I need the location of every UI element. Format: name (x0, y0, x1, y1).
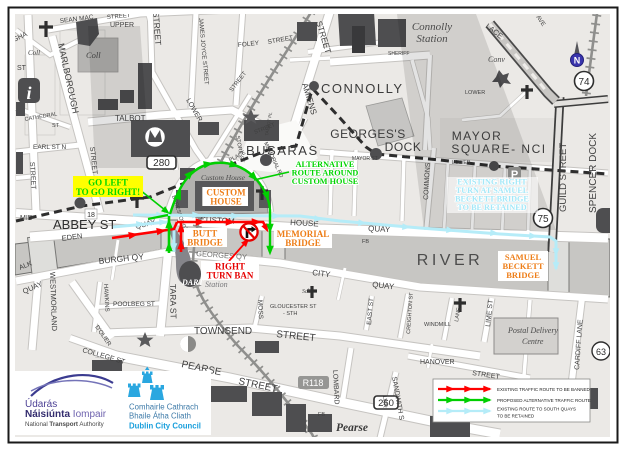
svg-text:i: i (26, 83, 31, 103)
svg-text:BRIDGE: BRIDGE (506, 270, 540, 280)
svg-text:Custom House: Custom House (201, 173, 246, 182)
svg-text:FB: FB (362, 239, 369, 245)
svg-text:National Transport Authority: National Transport Authority (25, 421, 105, 428)
svg-text:ST: ST (17, 65, 27, 72)
svg-text:POOLBEG ST: POOLBEG ST (113, 301, 155, 308)
svg-text:UPPER: UPPER (110, 22, 134, 29)
svg-text:LOWER: LOWER (465, 90, 485, 96)
svg-text:SPENCER DOCK: SPENCER DOCK (588, 133, 599, 213)
svg-text:MOSS: MOSS (256, 300, 264, 320)
svg-text:63: 63 (596, 347, 606, 357)
svg-text:GLOUCESTER ST: GLOUCESTER ST (270, 304, 317, 310)
svg-text:Coll: Coll (86, 50, 101, 60)
svg-text:LWR: LWR (381, 396, 388, 408)
svg-text:Dublin City Council: Dublin City Council (129, 422, 201, 431)
svg-text:MID: MID (20, 215, 33, 222)
svg-text:TALBOT: TALBOT (115, 114, 146, 123)
svg-text:CONNOLLY: CONNOLLY (321, 81, 404, 96)
svg-text:R118: R118 (303, 378, 324, 388)
svg-text:HOUSE: HOUSE (210, 197, 242, 207)
svg-text:MAYOR ST: MAYOR ST (352, 156, 378, 162)
svg-text:Conv: Conv (488, 55, 505, 64)
svg-text:EXISTING TRAFFIC ROUTE TO BE B: EXISTING TRAFFIC ROUTE TO BE BANNED (497, 387, 591, 392)
svg-text:DOCK: DOCK (385, 140, 422, 154)
svg-text:TO BE RETAINED: TO BE RETAINED (457, 203, 526, 212)
svg-text:HANOVER: HANOVER (420, 359, 455, 366)
svg-text:BUSARAS: BUSARAS (246, 143, 319, 158)
svg-text:Pearse: Pearse (336, 422, 368, 434)
svg-text:Bhaile Átha Cliath: Bhaile Átha Cliath (129, 412, 191, 421)
svg-text:Coll: Coll (28, 49, 40, 57)
svg-text:SQUARE- NCI: SQUARE- NCI (451, 142, 546, 156)
svg-text:FB: FB (318, 412, 325, 418)
svg-text:280: 280 (153, 158, 170, 169)
svg-text:TARA ST: TARA ST (168, 284, 179, 319)
svg-text:Sch: Sch (302, 289, 311, 295)
svg-text:- STH: - STH (283, 311, 297, 317)
svg-text:ST: ST (52, 123, 60, 129)
svg-text:TO BE RETAINED: TO BE RETAINED (497, 414, 535, 419)
svg-text:PROPOSED ALTERNATIVE TRAFFIC R: PROPOSED ALTERNATIVE TRAFFIC ROUTE (497, 398, 591, 403)
svg-text:MAYOR: MAYOR (452, 129, 503, 143)
svg-text:WINDMILL: WINDMILL (424, 322, 451, 328)
svg-text:Náisiúnta Iompair: Náisiúnta Iompair (25, 409, 107, 420)
svg-text:RIVER: RIVER (417, 252, 483, 269)
svg-text:TURN BAN: TURN BAN (207, 271, 254, 281)
svg-text:BRIDGE: BRIDGE (285, 238, 321, 248)
svg-text:EXISTING ROUTE TO SOUTH QUAYS: EXISTING ROUTE TO SOUTH QUAYS (497, 407, 576, 412)
svg-text:75: 75 (537, 214, 549, 225)
svg-text:TOWNSEND: TOWNSEND (194, 326, 252, 337)
svg-text:GEORGES'S: GEORGES'S (330, 127, 405, 141)
svg-text:N: N (574, 56, 581, 66)
svg-text:GO LEFT: GO LEFT (88, 178, 128, 188)
svg-text:Comhairle Cathrach: Comhairle Cathrach (129, 403, 198, 412)
svg-text:ABBEY ST: ABBEY ST (53, 217, 116, 232)
svg-text:SHERIFF: SHERIFF (388, 51, 409, 57)
svg-text:Postal Delivery: Postal Delivery (507, 326, 558, 335)
svg-text:Station: Station (416, 33, 448, 45)
svg-text:Centre: Centre (522, 337, 544, 346)
svg-text:CUSTOM HOUSE: CUSTOM HOUSE (292, 177, 359, 186)
svg-text:TO GO RIGHT!: TO GO RIGHT! (76, 187, 140, 197)
svg-text:Station: Station (205, 280, 228, 289)
svg-text:STREET: STREET (28, 162, 36, 191)
svg-text:EARL ST N: EARL ST N (33, 144, 67, 151)
svg-text:74: 74 (578, 77, 590, 88)
svg-text:DART: DART (181, 278, 204, 287)
svg-text:GUILD STREET: GUILD STREET (558, 143, 569, 212)
svg-text:BRIDGE: BRIDGE (187, 238, 223, 248)
svg-text:Connolly: Connolly (412, 21, 452, 33)
svg-text:LOWER: LOWER (452, 160, 471, 166)
